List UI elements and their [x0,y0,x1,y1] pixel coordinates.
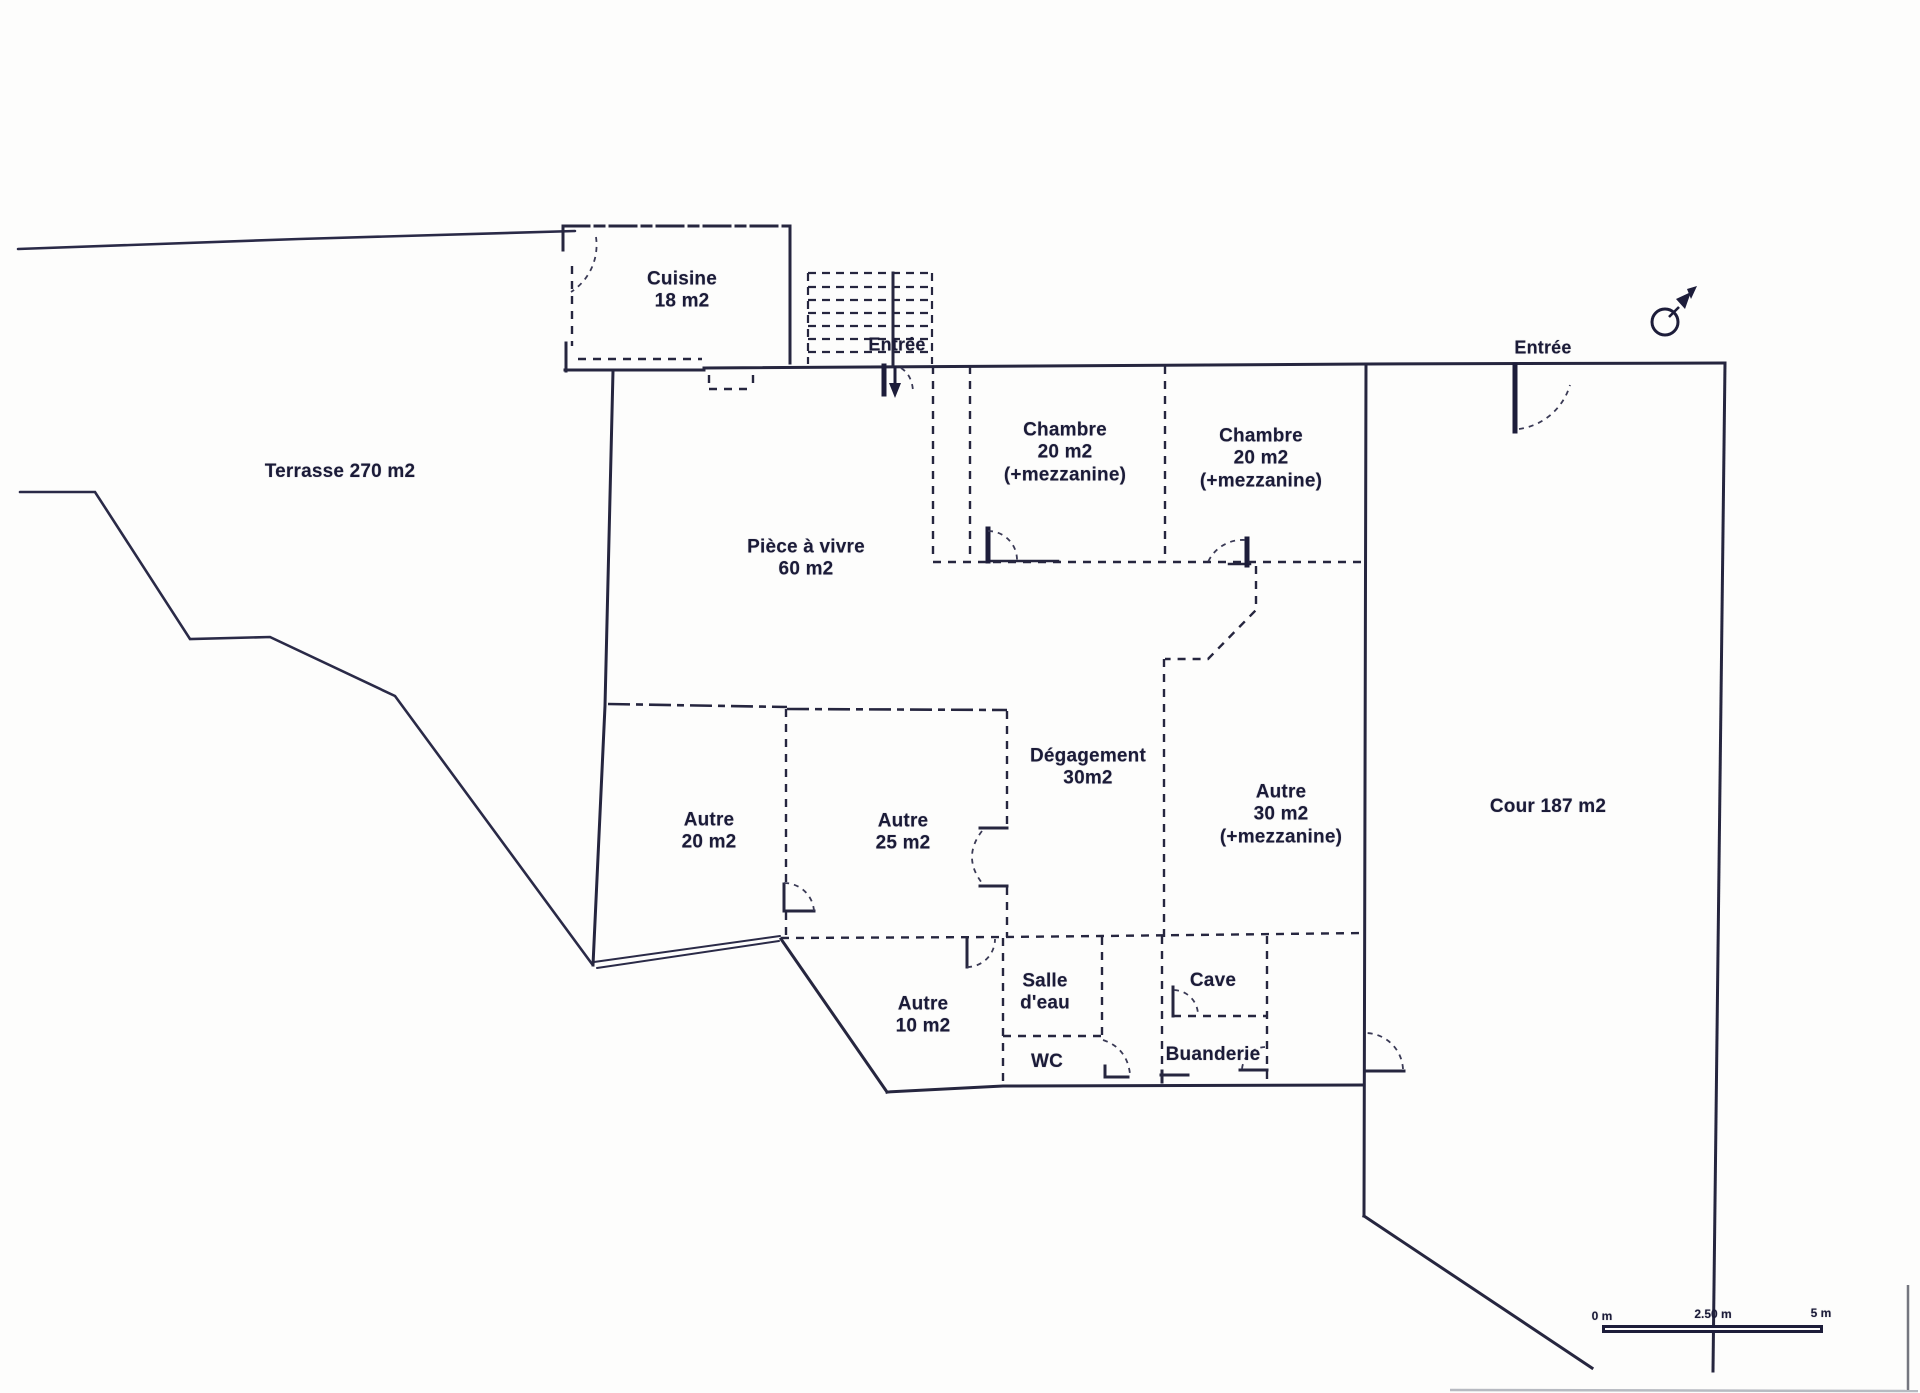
terrain-line-top [18,231,575,249]
wall-west [593,371,613,965]
degagement-label: Dégagement 30m2 [1030,746,1146,791]
terrace-step-line-outer [594,936,780,962]
room-area: 60 m2 [747,559,865,581]
cuisine-door-arc [571,237,597,292]
scan-edge-bottom [1450,1390,1918,1391]
entree-arrow-head [889,383,901,398]
scan-artifacts [1450,1285,1918,1391]
room-name: Autre [876,811,931,833]
floor-plan-drawing [0,0,1920,1393]
room-name: Salle [1020,971,1070,993]
room-area: 20 m2 [682,832,737,854]
piece-south-wall-right [787,709,1007,710]
terrain-outline [18,231,780,968]
entree-left-label: Entrée [868,334,925,355]
wall-south [887,1085,1364,1092]
cave-door-arc [1174,990,1198,1015]
autre25-label: Autre 25 m2 [876,811,931,856]
cour-label: Cour 187 m2 [1490,796,1606,818]
scale-mid-label: 2.50 m [1694,1307,1731,1321]
east-exit-door-arc [1366,1033,1403,1069]
scale-bar [1602,1325,1823,1333]
room-name: Pièce à vivre [747,537,865,559]
chambre2-label: Chambre 20 m2 (+mezzanine) [1200,425,1322,492]
terrace-south-boundary [20,492,592,964]
wc-lobby-door-arc [1103,1040,1130,1074]
room-name: Cuisine [647,269,717,291]
wc-label: WC [1031,1051,1063,1073]
cuisine-label: Cuisine 18 m2 [647,269,717,314]
room-area: 25 m2 [876,833,931,855]
room-name: Dégagement [1030,746,1146,768]
wall-east-building [1364,364,1366,1216]
room-name: Chambre [1200,425,1322,447]
autre10-label: Autre 10 m2 [896,994,951,1039]
room-name: Autre [1220,781,1342,803]
chambre1-door-arc [988,531,1017,561]
terrasse-label: Terrasse 270 m2 [265,461,416,483]
room-area: 10 m2 [896,1016,951,1038]
entree-right-door-arc [1519,385,1570,429]
autre-divider-door-arc [784,883,814,911]
door-jambs-autre25 [980,828,1007,886]
room-note: (+mezzanine) [1004,464,1126,486]
room-note: (+mezzanine) [1220,826,1342,848]
entree-left-door-arc [901,368,913,391]
room-name: Autre [682,810,737,832]
autre20-label: Autre 20 m2 [682,810,737,855]
room-area: 30m2 [1030,768,1146,790]
bottom-strip-north-wall [781,933,1366,938]
room-name: Autre [896,994,951,1016]
autre25-door-arc [972,831,982,883]
step-box-below-cuisine [709,375,753,389]
cave-label: Cave [1190,970,1236,992]
entree-right-label: Entrée [1514,337,1571,358]
wall-sw-diagonal [781,939,887,1092]
terrace-step-line-inner [597,941,779,968]
chambre1-label: Chambre 20 m2 (+mezzanine) [1004,419,1126,486]
wall-main-north [704,363,1725,368]
room-area: 20 m2 [1200,448,1322,470]
north-arrow-icon [1652,286,1697,335]
chambre2-door-arc [1208,540,1245,562]
autre30-label: Autre 30 m2 (+mezzanine) [1220,781,1342,848]
door-jamb-wc-lobby [1105,1066,1128,1077]
degagement-east-wall [1164,566,1256,937]
wall-cour-east [1713,363,1725,1371]
scale-zero-label: 0 m [1592,1309,1613,1323]
room-area: 20 m2 [1004,442,1126,464]
bottom-strip-door-arc [967,939,995,967]
scale-bar-inner-line [1605,1328,1820,1330]
room-name: Chambre [1004,419,1126,441]
piece-south-wall-left [608,704,787,707]
scale-end-label: 5 m [1811,1306,1832,1320]
room-area: 30 m2 [1220,804,1342,826]
piece-a-vivre-label: Pièce à vivre 60 m2 [747,537,865,582]
salle-eau-label: Salle d'eau [1020,971,1070,1016]
room-name-2: d'eau [1020,993,1070,1015]
door-jamb-buanderie-left [1161,1071,1188,1082]
floor-plan-page: Terrasse 270 m2 Cuisine 18 m2 Entrée Ent… [0,0,1920,1393]
entree-left-arrow [889,366,901,398]
room-note: (+mezzanine) [1200,470,1322,492]
walls-dashdot [608,704,1007,710]
walls-dashed [572,266,1366,1085]
buanderie-label: Buanderie [1166,1044,1261,1066]
wall-cour-south-diagonal [1364,1216,1592,1368]
room-area: 18 m2 [647,291,717,313]
